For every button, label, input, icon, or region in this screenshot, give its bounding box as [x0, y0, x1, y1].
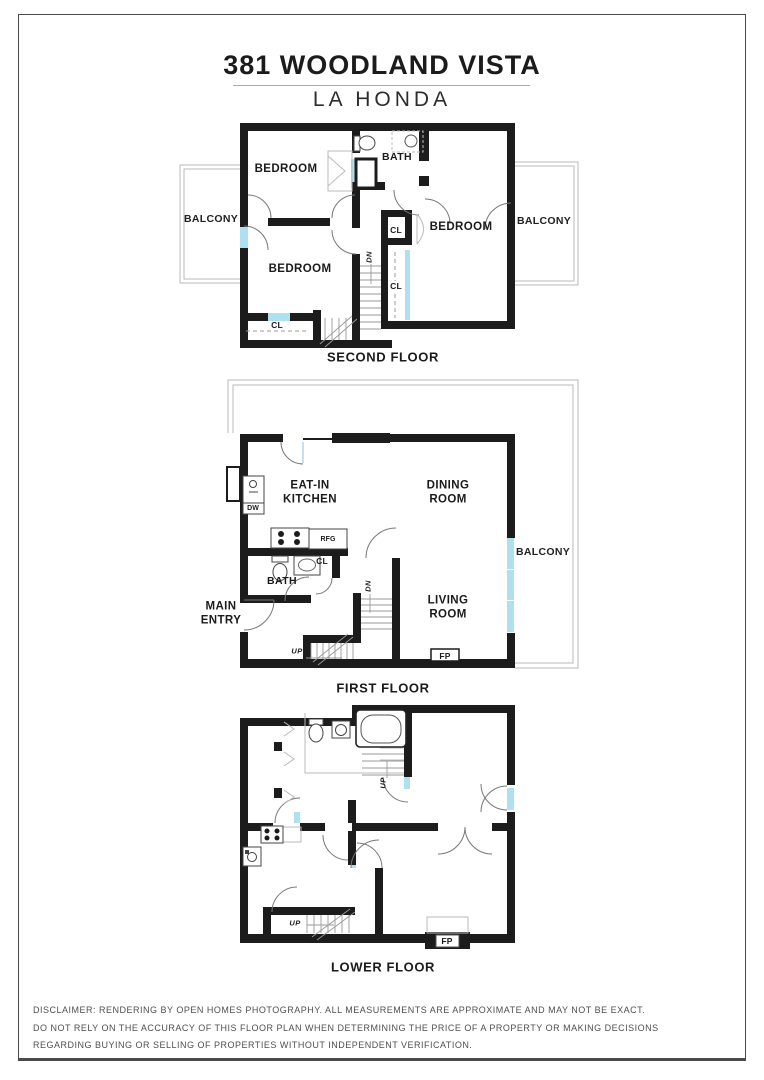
- floor-name-second: SECOND FLOOR: [327, 349, 439, 364]
- dresser-icon: [417, 214, 424, 244]
- room-label-living-room: LIVING ROOM: [422, 594, 474, 621]
- room-label-main-entry: MAIN ENTRY: [197, 600, 245, 627]
- toilet-icon: [272, 556, 288, 562]
- door-arcs: [272, 777, 507, 912]
- disclaimer-line-3: REGARDING BUYING OR SELLING OF PROPERTIE…: [33, 1037, 659, 1055]
- disclaimer-line-1: DISCLAIMER: RENDERING BY OPEN HOMES PHOT…: [33, 1002, 659, 1020]
- kitchen-fixtures: [243, 826, 283, 866]
- stairs-up-label-first: UP: [291, 648, 302, 657]
- stairs-up-label-lower-bottom: UP: [289, 920, 300, 929]
- fireplace-label-first: FP: [439, 651, 450, 661]
- floor-name-first: FIRST FLOOR: [336, 680, 429, 695]
- room-label-bath-second: BATH: [382, 151, 412, 163]
- room-label-dining-room: DINING ROOM: [422, 479, 474, 506]
- room-label-balcony-first: BALCONY: [516, 546, 570, 558]
- closet-label-bottom: CL: [271, 320, 283, 330]
- refrigerator-label: RFG: [320, 536, 335, 544]
- dishwasher-bump: [227, 467, 240, 501]
- bathtub-icon: [356, 710, 406, 747]
- lower-floor-plan: [240, 705, 515, 949]
- room-label-balcony-right: BALCONY: [517, 215, 571, 227]
- floor-name-lower: LOWER FLOOR: [331, 959, 435, 974]
- room-label-bath-first: BATH: [267, 575, 297, 587]
- dishwasher-label: DW: [247, 505, 259, 513]
- hearth-outline: [427, 917, 468, 933]
- bath-fixtures: [309, 710, 406, 747]
- shower-icon: [356, 159, 376, 188]
- sink-icon: [405, 135, 417, 147]
- second-floor-plan: [180, 123, 578, 348]
- disclaimer-line-2: DO NOT RELY ON THE ACCURACY OF THIS FLOO…: [33, 1020, 659, 1038]
- room-label-bedroom-bottom-left: BEDROOM: [269, 263, 332, 277]
- closet-label-tall: CL: [388, 281, 404, 291]
- stairs-up-label-lower-top: UP: [380, 777, 389, 788]
- washer-icon: [243, 847, 261, 866]
- room-label-eat-in-kitchen: EAT-IN KITCHEN: [278, 479, 342, 506]
- room-label-bedroom-right: BEDROOM: [430, 221, 493, 235]
- fireplace-label-lower: FP: [441, 936, 452, 946]
- disclaimer: DISCLAIMER: RENDERING BY OPEN HOMES PHOT…: [33, 1002, 659, 1055]
- stove-icon: [261, 826, 283, 843]
- stairs-dn-label-second: DN: [366, 251, 375, 263]
- stairs: [306, 594, 392, 665]
- closet-label-first: CL: [316, 556, 328, 566]
- room-label-balcony-left: BALCONY: [184, 213, 238, 225]
- room-label-bedroom-top-left: BEDROOM: [255, 163, 318, 177]
- closet-label-top: CL: [390, 225, 402, 235]
- floor-plan-flyer: { "header": { "title": "381 WOODLAND VIS…: [0, 0, 764, 1080]
- deck-outline: [228, 380, 578, 668]
- wardrobe-icon: [328, 151, 352, 191]
- stairs-dn-label-first: DN: [365, 580, 374, 592]
- stove-icon: [271, 528, 309, 548]
- walls: [240, 433, 515, 668]
- first-floor-plan: [227, 380, 578, 668]
